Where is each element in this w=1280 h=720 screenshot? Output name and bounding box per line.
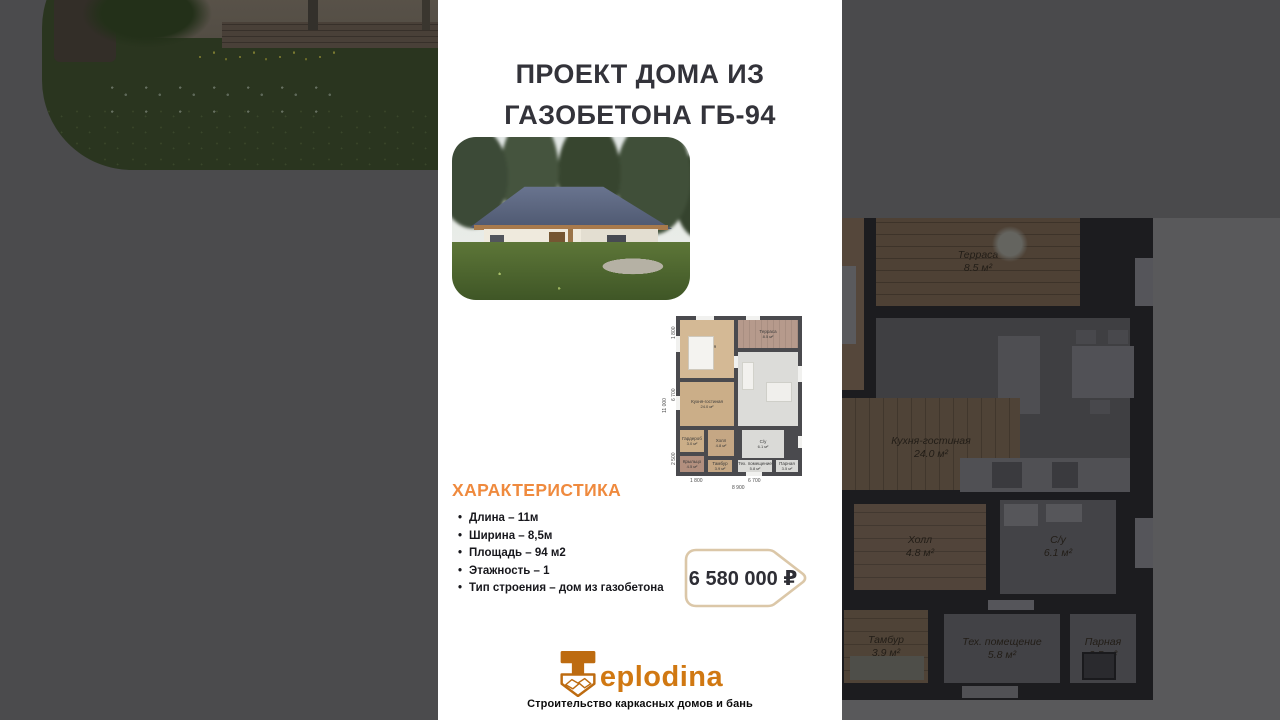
- characteristic-item: Ширина – 8,5м: [458, 528, 664, 546]
- dim-label: 6 700: [748, 478, 761, 484]
- chair-shape: [1108, 330, 1128, 344]
- plan-living-area: [738, 352, 798, 426]
- dim-label-total-height: 11 000: [662, 398, 668, 413]
- deck-shape: [222, 22, 438, 48]
- appliance-shape: [1052, 462, 1078, 488]
- plan-room-wardrobe: Гардероб 3.0 м²: [680, 430, 704, 452]
- characteristic-item: Тип строения – дом из газобетона: [458, 580, 664, 598]
- plant-shape: [992, 226, 1028, 262]
- dim-label: 1 800: [690, 478, 703, 484]
- room-area: 24.0 м²: [701, 404, 714, 409]
- house-render-image: [452, 137, 690, 300]
- wall-opening: [746, 472, 762, 476]
- room-area: 4.8 м²: [906, 547, 934, 560]
- room-area: 3.5 м²: [782, 466, 793, 471]
- plan-room-bedroom: Спальня 11.7 м²: [680, 320, 734, 378]
- bg-room-tech: Тех. помещение 5.8 м²: [944, 614, 1060, 683]
- floorplan-dimmed: Терраса 8.5 м² Кухня-гостиная 24.0 м²: [842, 218, 1153, 700]
- chair-shape: [1090, 400, 1110, 414]
- page-title: ПРОЕКТ ДОМА ИЗГАЗОБЕТОНА ГБ-94: [438, 54, 842, 136]
- room-area: 6.1 м²: [758, 444, 769, 449]
- dim-label: 2 500: [671, 452, 677, 465]
- room-name: Кухня-гостиная: [891, 435, 970, 448]
- wall-opening: [962, 686, 1018, 698]
- grass-texture-shape: [42, 106, 438, 170]
- room-area: 5.8 м²: [988, 649, 1016, 662]
- room-area: 4.8 м²: [716, 443, 727, 448]
- wall-opening: [988, 600, 1034, 610]
- shower-shape: [1004, 504, 1038, 526]
- dining-table-shape: [766, 382, 792, 402]
- characteristic-item: Этажность – 1: [458, 563, 664, 581]
- characteristic-item: Площадь – 94 м2: [458, 545, 664, 563]
- room-area: 3.0 м²: [687, 441, 698, 446]
- dim-label: 6 700: [671, 388, 677, 401]
- wall-opening: [1135, 258, 1153, 306]
- dim-label-total-width: 8 900: [732, 485, 745, 491]
- brand-tagline: Строительство каркасных домов и бань: [527, 698, 753, 710]
- appliance-shape: [992, 462, 1022, 488]
- wall-opening: [696, 316, 714, 320]
- plan-room-terrace: Терраса 8.5 м²: [738, 320, 798, 348]
- wall-opening: [798, 436, 802, 448]
- bed-shape: [688, 336, 714, 370]
- logo-icon: [557, 650, 599, 697]
- bg-room-terrace: Терраса 8.5 м²: [876, 218, 1080, 306]
- dining-table-shape: [1072, 346, 1134, 398]
- bush-shape: [82, 0, 212, 48]
- room-name: Тамбур: [868, 634, 904, 647]
- room-name: Холл: [908, 534, 932, 547]
- plan-room-porch: Крыльцо 4.5 м²: [680, 456, 704, 472]
- price-value: 6 580 000 ₽: [692, 547, 794, 609]
- room-name: Парная: [1085, 636, 1122, 649]
- title-line-1: ПРОЕКТ ДОМА ИЗ: [516, 59, 765, 89]
- wall-opening: [734, 356, 738, 368]
- plan-room-kitchen-living: Кухня-гостиная 24.0 м²: [680, 382, 734, 426]
- brand-name: eplodina: [600, 657, 723, 697]
- plan-room-steam: Парная 3.5 м²: [776, 460, 798, 472]
- bed-shape: [842, 266, 856, 344]
- porch-post-shape: [308, 0, 318, 30]
- sink-shape: [1046, 504, 1082, 522]
- price-tag: 6 580 000 ₽: [682, 547, 812, 609]
- wall-opening: [746, 316, 760, 320]
- right-backdrop: Терраса 8.5 м² Кухня-гостиная 24.0 м²: [842, 0, 1280, 720]
- left-backdrop: [0, 0, 438, 720]
- room-area: 24.0 м²: [914, 448, 948, 461]
- title-line-2: ГАЗОБЕТОНА ГБ-94: [504, 100, 776, 130]
- kitchen-counter-shape: [960, 458, 1130, 492]
- wall-opening: [1135, 518, 1153, 568]
- characteristics-heading: ХАРАКТЕРИСТИКА: [452, 480, 621, 501]
- plan-room-tambour: Тамбур 3.9 м²: [708, 460, 732, 472]
- yellow-flowers-shape: [192, 46, 342, 72]
- room-area: 6.1 м²: [1044, 547, 1072, 560]
- room-area: 8.5 м²: [763, 334, 774, 339]
- room-area: 5.8 м²: [750, 466, 761, 471]
- sofa-shape: [742, 362, 754, 390]
- video-frame: Терраса 8.5 м² Кухня-гостиная 24.0 м²: [0, 0, 1280, 720]
- floorplan-walls: Спальня 11.7 м² Терраса 8.5 м² Кухня-гос…: [676, 316, 802, 476]
- characteristic-item: Длина – 11м: [458, 510, 664, 528]
- chair-shape: [1076, 330, 1096, 344]
- floorplan-paper-dimmed: Терраса 8.5 м² Кухня-гостиная 24.0 м²: [842, 218, 1280, 720]
- wall-opening: [798, 366, 802, 382]
- brand-logo-row: eplodina: [557, 650, 723, 697]
- stove-shape: [1082, 652, 1116, 680]
- plan-room-bathroom: С/у 6.1 м²: [742, 430, 784, 458]
- room-name: С/у: [1050, 534, 1066, 547]
- room-area: 8.5 м²: [964, 262, 992, 275]
- room-area: 3.9 м²: [715, 466, 726, 471]
- roof-shape: [470, 185, 672, 229]
- brand-logo: eplodina Строительство каркасных домов и…: [438, 650, 842, 710]
- doormat-shape: [850, 656, 924, 680]
- characteristics-list: Длина – 11м Ширина – 8,5м Площадь – 94 м…: [458, 510, 664, 598]
- room-name: Тех. помещение: [962, 636, 1041, 649]
- floorplan-image: Спальня 11.7 м² Терраса 8.5 м² Кухня-гос…: [660, 313, 808, 493]
- bg-room-hall: Холл 4.8 м²: [854, 504, 986, 590]
- lawn-shape: [452, 242, 690, 300]
- content-panel: ПРОЕКТ ДОМА ИЗГАЗОБЕТОНА ГБ-94 Спаль: [438, 0, 842, 720]
- house-photo-dimmed: [42, 0, 438, 170]
- porch-post-shape: [422, 0, 430, 30]
- plan-room-hall: Холл 4.8 м²: [708, 430, 734, 456]
- dim-label: 1 800: [671, 326, 677, 339]
- room-area: 4.5 м²: [687, 464, 698, 469]
- plan-room-tech: Тех. помещение 5.8 м²: [738, 460, 772, 472]
